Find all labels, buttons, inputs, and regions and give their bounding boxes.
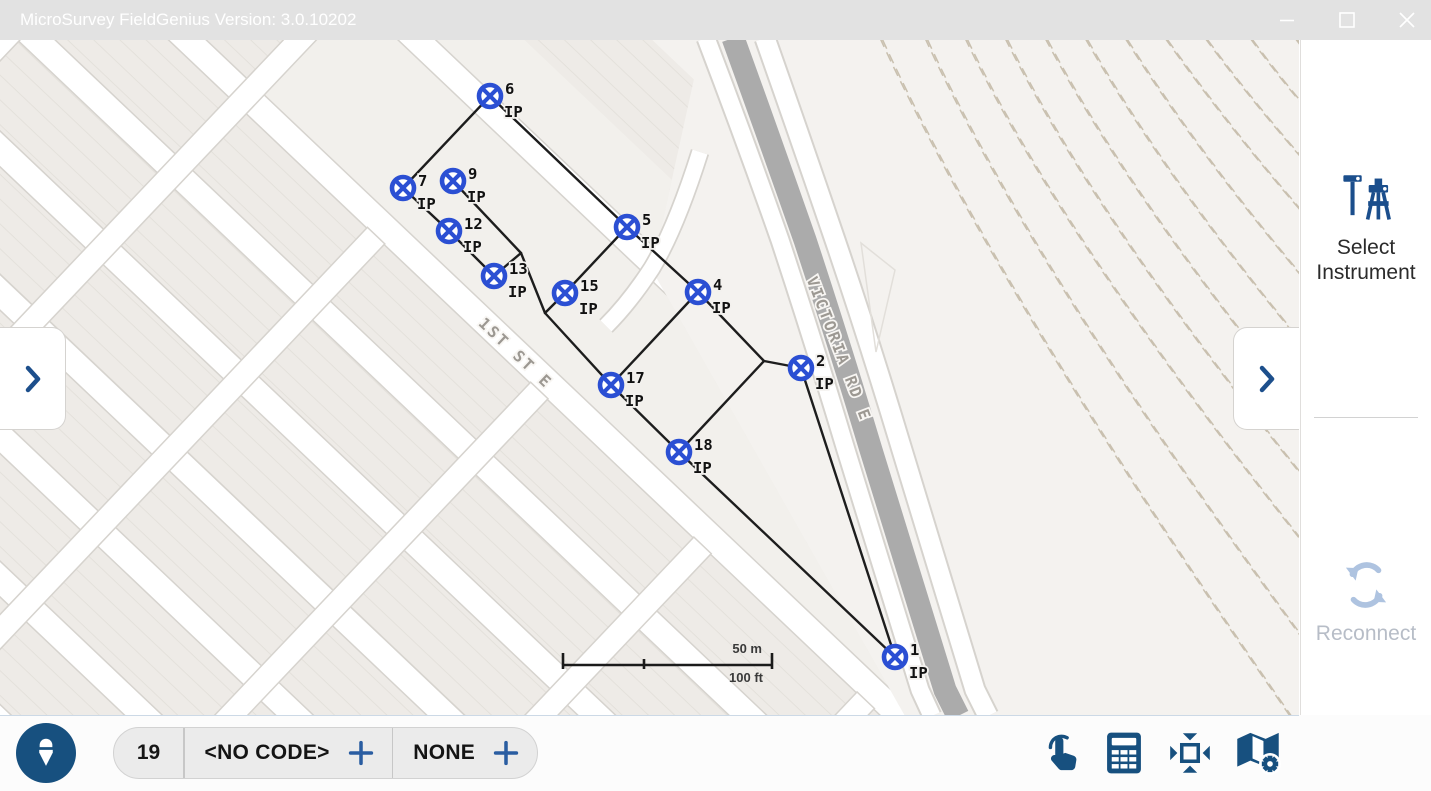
point-number-label: 4 (713, 276, 722, 294)
fieldgenius-window: { "window": { "title": "MicroSurvey Fiel… (0, 0, 1431, 791)
touch-icon (1043, 731, 1085, 775)
point-entry-bar: 19 <NO CODE> NONE (113, 727, 538, 779)
point-number-label: 18 (694, 436, 713, 454)
select-instrument-label: Select Instrument (1307, 235, 1425, 285)
store-point-button[interactable] (16, 723, 76, 783)
add-linework-button[interactable] (491, 728, 537, 778)
point-number-field[interactable]: 19 (114, 728, 183, 778)
point-code-label: IP (693, 459, 712, 477)
instrument-sidebar: Select Instrument Reconnect (1300, 40, 1431, 791)
point-number-label: 9 (468, 165, 477, 183)
maximize-icon (1338, 11, 1356, 29)
map-viewport[interactable]: 1ST ST E VICTORIA RD E 1IP2IP4IP5IP6IP7I… (0, 40, 1299, 715)
point-code-label: IP (504, 103, 523, 121)
title-bar: MicroSurvey FieldGenius Version: 3.0.102… (0, 0, 1431, 40)
sidebar-divider (1314, 417, 1418, 418)
point-number-label: 2 (816, 352, 825, 370)
zoom-extents-button[interactable] (1166, 729, 1214, 777)
point-number-label: 13 (509, 260, 528, 278)
calculator-button[interactable] (1100, 729, 1148, 777)
map-settings-icon (1234, 731, 1282, 775)
select-instrument-button[interactable]: Select Instrument (1301, 174, 1431, 285)
reconnect-button[interactable]: Reconnect (1301, 560, 1431, 646)
point-code-label: IP (467, 188, 486, 206)
point-number-label: 17 (626, 369, 645, 387)
map-canvas: 1ST ST E VICTORIA RD E 1IP2IP4IP5IP6IP7I… (0, 40, 1299, 715)
window-title: MicroSurvey FieldGenius Version: 3.0.102… (20, 0, 356, 40)
code-selector[interactable]: <NO CODE> (185, 728, 346, 778)
point-number-label: 12 (464, 215, 483, 233)
zoom-extents-icon (1168, 731, 1212, 775)
add-code-button[interactable] (346, 728, 392, 778)
minimize-button[interactable] (1264, 0, 1310, 40)
calculator-icon (1106, 732, 1142, 774)
point-code-label: IP (909, 664, 928, 682)
point-code-label: IP (712, 299, 731, 317)
point-number-label: 1 (910, 641, 919, 659)
point-code-label: IP (508, 283, 527, 301)
close-icon (1398, 11, 1416, 29)
point-code-label: IP (641, 234, 660, 252)
point-number-label: 15 (580, 277, 599, 295)
point-code-label: IP (815, 375, 834, 393)
right-panel-toggle[interactable] (1233, 327, 1299, 430)
refresh-icon (1341, 560, 1391, 610)
point-code-label: IP (463, 238, 482, 256)
plumb-bob-icon (29, 735, 63, 771)
point-number-label: 5 (642, 211, 651, 229)
reconnect-label: Reconnect (1307, 621, 1425, 646)
touch-mode-button[interactable] (1040, 729, 1088, 777)
point-code-label: IP (625, 392, 644, 410)
scale-imperial-label: 100 ft (729, 670, 764, 685)
instrument-icon (1338, 174, 1394, 224)
plus-icon (493, 740, 519, 766)
close-button[interactable] (1384, 0, 1430, 40)
point-code-label: IP (579, 300, 598, 318)
point-code-label: IP (417, 195, 436, 213)
point-number-label: 6 (505, 80, 514, 98)
point-number-label: 7 (418, 172, 427, 190)
left-panel-toggle[interactable] (0, 327, 66, 430)
maximize-button[interactable] (1324, 0, 1370, 40)
scale-metric-label: 50 m (732, 641, 762, 656)
minimize-icon (1278, 11, 1296, 29)
linework-selector[interactable]: NONE (393, 728, 491, 778)
chevron-right-icon (24, 362, 42, 396)
chevron-right-icon (1258, 362, 1276, 396)
toolbar-divider (0, 715, 1299, 716)
plus-icon (348, 740, 374, 766)
map-options-button[interactable] (1234, 729, 1282, 777)
